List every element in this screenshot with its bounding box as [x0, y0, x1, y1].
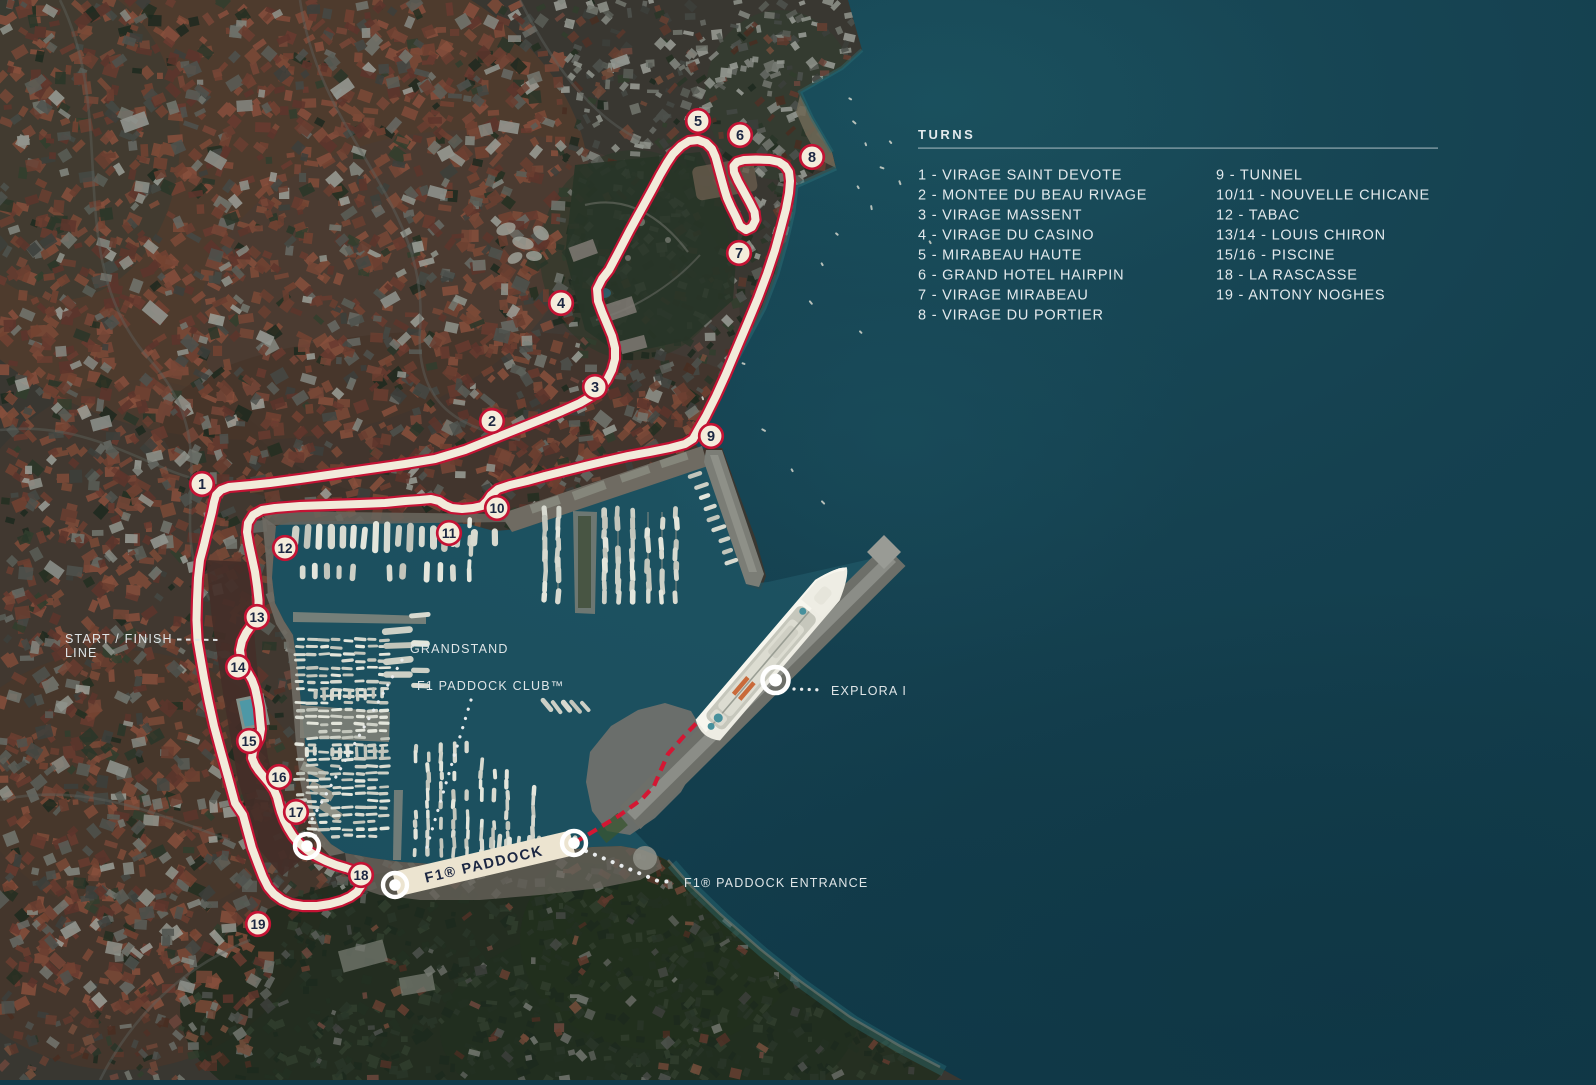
- svg-text:19 - ANTONY NOGHES: 19 - ANTONY NOGHES: [1216, 288, 1385, 304]
- svg-text:16: 16: [271, 770, 287, 785]
- svg-text:3 - VIRAGE MASSENT: 3 - VIRAGE MASSENT: [918, 208, 1082, 224]
- svg-text:7: 7: [735, 246, 743, 262]
- svg-text:GRANDSTAND: GRANDSTAND: [410, 642, 509, 656]
- svg-text:11: 11: [442, 526, 457, 541]
- svg-text:8: 8: [808, 150, 816, 166]
- svg-text:10: 10: [489, 501, 504, 516]
- svg-text:15: 15: [241, 734, 257, 749]
- svg-text:1 - VIRAGE SAINT DEVOTE: 1 - VIRAGE SAINT DEVOTE: [918, 168, 1122, 184]
- svg-text:13/14 - LOUIS CHIRON: 13/14 - LOUIS CHIRON: [1216, 228, 1386, 244]
- svg-text:18 - LA RASCASSE: 18 - LA RASCASSE: [1216, 268, 1358, 284]
- svg-text:5 - MIRABEAU HAUTE: 5 - MIRABEAU HAUTE: [918, 248, 1082, 264]
- svg-text:LINE: LINE: [65, 646, 98, 660]
- svg-text:9: 9: [707, 429, 715, 445]
- svg-text:12: 12: [277, 541, 292, 556]
- svg-text:5: 5: [694, 114, 702, 130]
- svg-text:3: 3: [591, 380, 599, 396]
- svg-text:6 - GRAND HOTEL HAIRPIN: 6 - GRAND HOTEL HAIRPIN: [918, 268, 1124, 284]
- svg-text:9 - TUNNEL: 9 - TUNNEL: [1216, 168, 1303, 184]
- svg-text:F1 PADDOCK CLUB™: F1 PADDOCK CLUB™: [417, 679, 564, 693]
- svg-text:7 - VIRAGE MIRABEAU: 7 - VIRAGE MIRABEAU: [918, 288, 1089, 304]
- svg-text:10/11 - NOUVELLE CHICANE: 10/11 - NOUVELLE CHICANE: [1216, 188, 1430, 204]
- svg-text:TURNS: TURNS: [918, 127, 975, 142]
- svg-text:1: 1: [198, 477, 206, 493]
- svg-text:4 - VIRAGE DU CASINO: 4 - VIRAGE DU CASINO: [918, 228, 1094, 244]
- svg-text:19: 19: [250, 917, 265, 932]
- svg-text:15/16 - PISCINE: 15/16 - PISCINE: [1216, 248, 1335, 264]
- svg-text:13: 13: [249, 610, 265, 625]
- svg-text:2: 2: [488, 414, 496, 430]
- svg-text:2 - MONTEE DU BEAU RIVAGE: 2 - MONTEE DU BEAU RIVAGE: [918, 188, 1147, 204]
- svg-text:14: 14: [230, 660, 246, 675]
- svg-text:6: 6: [736, 128, 744, 144]
- svg-text:F1® PADDOCK ENTRANCE: F1® PADDOCK ENTRANCE: [684, 876, 868, 890]
- svg-text:EXPLORA I: EXPLORA I: [831, 684, 907, 698]
- svg-text:12 - TABAC: 12 - TABAC: [1216, 208, 1300, 224]
- svg-text:4: 4: [557, 296, 565, 312]
- svg-text:8 - VIRAGE DU PORTIER: 8 - VIRAGE DU PORTIER: [918, 308, 1104, 324]
- svg-text:START / FINISH: START / FINISH: [65, 632, 173, 646]
- svg-text:17: 17: [288, 805, 303, 820]
- svg-text:18: 18: [353, 868, 369, 883]
